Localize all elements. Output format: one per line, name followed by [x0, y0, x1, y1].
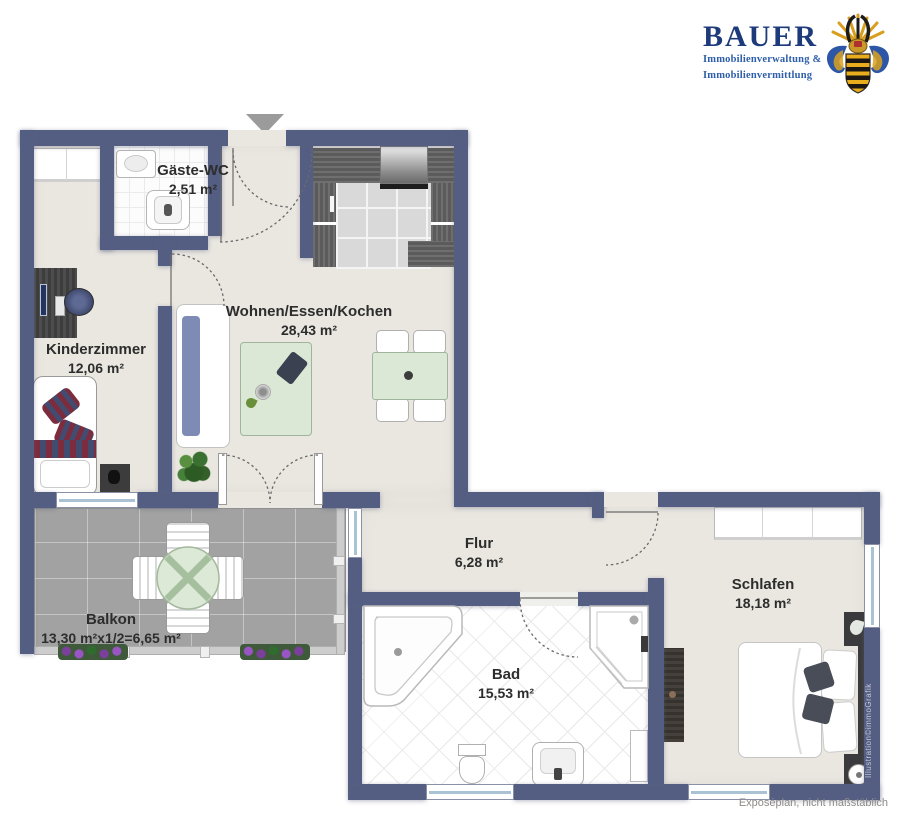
toilet-flush [164, 204, 172, 216]
railing-post [333, 556, 345, 566]
room-label-flur: Flur 6,28 m² [455, 535, 503, 571]
room-name: Gäste-WC [157, 162, 229, 181]
window-glass [429, 791, 511, 794]
bed-pillow [40, 460, 90, 488]
room-area: 13,30 m²x1/2=6,65 m² [41, 630, 181, 648]
room-name: Balkon [41, 611, 181, 630]
counter-divider [313, 222, 336, 225]
room-area: 28,43 m² [226, 322, 392, 340]
wall-segment [348, 784, 426, 800]
fridge-handle [330, 196, 334, 212]
dining-chair [413, 398, 446, 422]
room-name: Schlafen [732, 576, 795, 595]
wall-segment [34, 492, 56, 508]
wall-stub [592, 492, 604, 518]
dining-table-dot [404, 371, 413, 380]
wall-segment [658, 492, 880, 507]
coffee-table [240, 342, 312, 436]
bathroom-window [426, 784, 514, 800]
balcony-chair [132, 556, 166, 600]
illustrator-credit: Illustration©immoGrafik [864, 683, 873, 778]
window-glass [59, 499, 135, 502]
room-area: 2,51 m² [157, 181, 229, 199]
monitor-icon [40, 284, 47, 316]
sofa-cushions [182, 316, 200, 436]
wall-segment [864, 492, 880, 544]
room-name: Kinderzimmer [46, 341, 146, 360]
room-label-gaeste-wc: Gäste-WC 2,51 m² [157, 162, 229, 198]
room-area: 6,28 m² [455, 554, 503, 572]
wall-segment [286, 130, 468, 146]
room-name: Flur [455, 535, 503, 554]
room-area: 18,18 m² [732, 595, 795, 613]
wall-segment [20, 130, 34, 654]
office-chair [64, 288, 94, 316]
wall-segment [100, 236, 208, 250]
bath-cabinet [630, 730, 648, 782]
railing-post [333, 614, 345, 624]
scale-disclaimer: Exposéplan, nicht maßstäblich [739, 797, 888, 809]
wall-segment [454, 492, 604, 507]
toilet-icon [458, 744, 486, 756]
bathroom-door-opening [520, 592, 578, 606]
wardrobe-divider [762, 508, 763, 538]
logo-subtitle-2: Immobilienvermittlung [703, 68, 821, 84]
lamp-dot [856, 772, 862, 778]
nightstand-item [108, 470, 120, 484]
dining-chair [376, 398, 409, 422]
room-label-wohnen: Wohnen/Essen/Kochen 28,43 m² [226, 303, 392, 339]
logo-subtitle-1: Immobilienverwaltung & [703, 52, 821, 68]
closet-divider [66, 149, 67, 181]
wall-segment [454, 130, 468, 492]
wall-segment [100, 146, 114, 250]
wall-segment [648, 578, 664, 784]
sink-bowl [124, 155, 148, 172]
kinderzimmer-balcony-window [56, 492, 138, 508]
balcony-railing-right [336, 508, 345, 655]
window-glass [354, 511, 357, 555]
room-area: 15,53 m² [478, 685, 534, 703]
bedroom-east-window [864, 544, 880, 628]
wardrobe [714, 507, 862, 540]
wall-segment [348, 592, 520, 606]
floorplan-page: Gäste-WC 2,51 m² Wohnen/Essen/Kochen 28,… [0, 0, 900, 832]
bed-blanket-band [34, 440, 96, 458]
toilet-bowl [459, 756, 485, 784]
room-area: 12,06 m² [46, 360, 146, 378]
room-name: Bad [478, 666, 534, 685]
wall-stub [158, 236, 172, 266]
closet [32, 148, 104, 182]
kitchen-counter [408, 241, 454, 267]
room-label-bad: Bad 15,53 m² [478, 666, 534, 702]
french-door-opening [218, 492, 322, 508]
wall-segment [158, 306, 172, 492]
plant-icon [174, 446, 214, 490]
french-door-leaf [314, 453, 323, 505]
company-crest-icon [819, 10, 897, 100]
wall-segment [322, 492, 380, 508]
sink-tap [554, 768, 562, 780]
railing-post [200, 646, 210, 658]
dining-chair [413, 330, 446, 354]
sideboard-knob [669, 691, 676, 698]
wall-segment [578, 592, 650, 606]
room-label-kinderzimmer: Kinderzimmer 12,06 m² [46, 341, 146, 377]
room-label-schlafen: Schlafen 18,18 m² [732, 576, 795, 612]
wall-segment [300, 146, 313, 258]
window-glass [871, 547, 874, 625]
room-name: Wohnen/Essen/Kochen [226, 303, 392, 322]
company-logo: BAUER Immobilienverwaltung & Immobilienv… [703, 22, 821, 84]
room-label-balkon: Balkon 13,30 m²x1/2=6,65 m² [41, 611, 181, 647]
wall-segment [514, 784, 688, 800]
flower-box [240, 644, 310, 660]
entry-door-opening [228, 130, 286, 146]
counter-divider [431, 222, 454, 225]
balcony-chair [166, 522, 210, 556]
hall-balcony-window [348, 508, 362, 558]
hood-vent-band [380, 184, 428, 189]
kitchen-counter [428, 148, 454, 183]
bedroom-door-opening [604, 492, 658, 507]
logo-title: BAUER [703, 22, 821, 52]
balcony-chair [210, 556, 244, 600]
window-glass [691, 791, 767, 794]
table-bowl [255, 384, 271, 400]
french-door-leaf [218, 453, 227, 505]
wall-segment [138, 492, 218, 508]
extractor-hood-icon [380, 146, 428, 184]
passage-floor [380, 492, 454, 508]
wardrobe-divider [812, 508, 813, 538]
wall-segment [20, 130, 228, 146]
kitchen-counter [313, 148, 380, 183]
